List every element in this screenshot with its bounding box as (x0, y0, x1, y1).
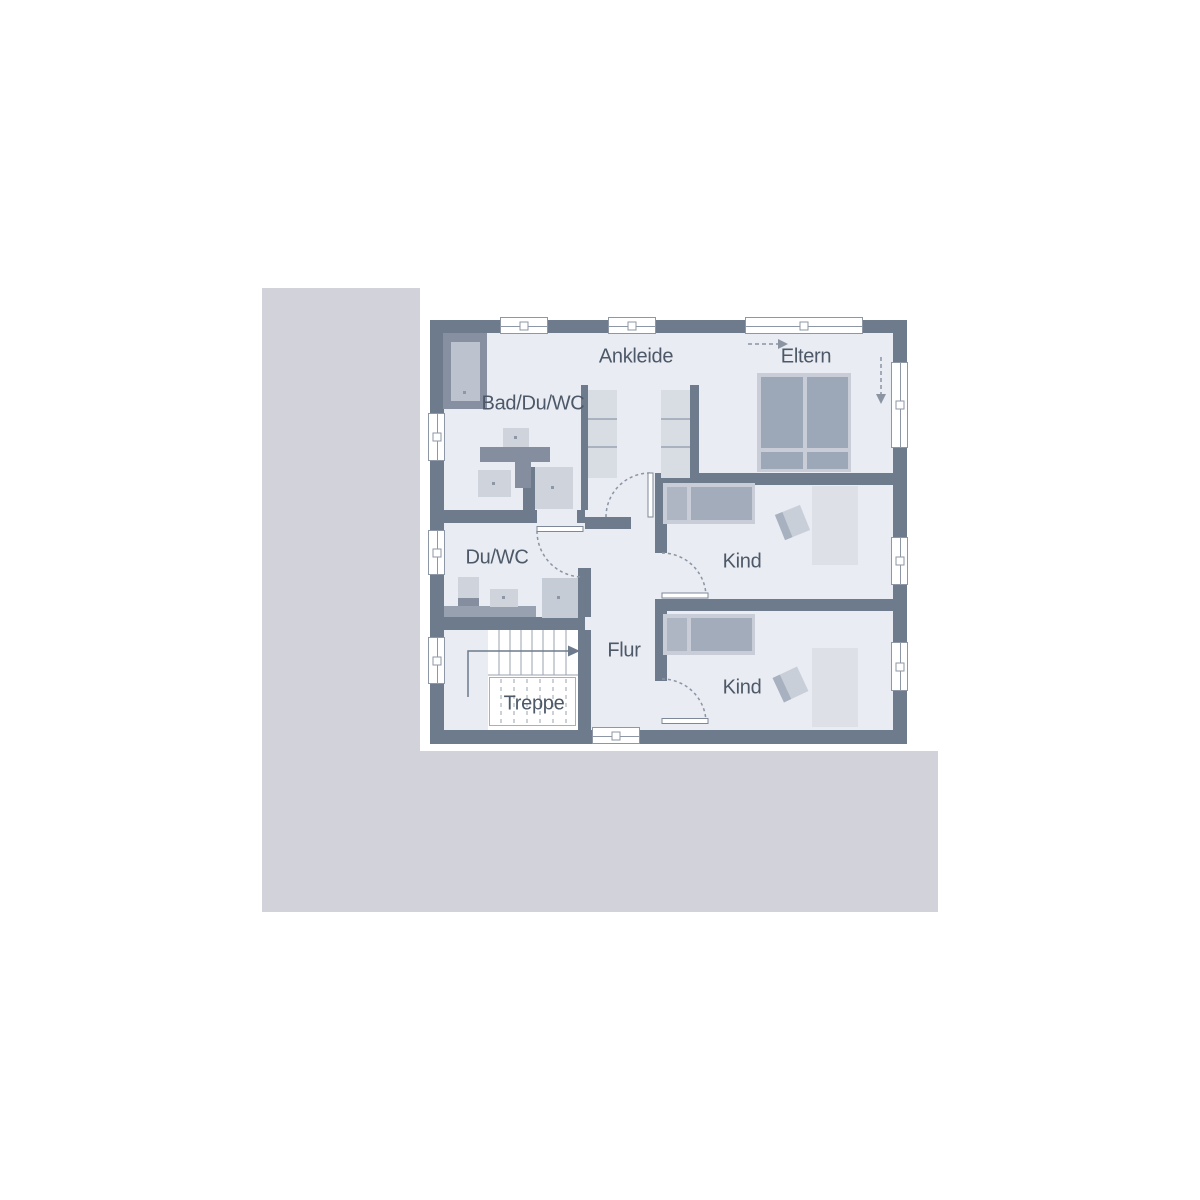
bad-washstand-counter (480, 447, 550, 462)
duwc-counter (444, 606, 536, 617)
mattress (691, 618, 752, 651)
window-knob (612, 731, 621, 740)
duwc-shower (542, 578, 578, 618)
wall-stairs-right (578, 630, 591, 730)
window-left-duwc (428, 530, 445, 575)
toilet-drain (492, 482, 495, 485)
kind2-desk (812, 648, 858, 727)
pillow (667, 618, 687, 651)
duwc-toilet (490, 589, 518, 607)
duwc-washbasin (458, 577, 479, 606)
wall-bad-duwc-west (444, 510, 537, 523)
window-knob (800, 321, 809, 330)
room-label-bad-du-wc: Bad/Du/WC (482, 393, 585, 416)
window-knob (895, 557, 904, 566)
bad-toilet (478, 470, 511, 497)
mattress (691, 487, 752, 520)
room-label-flur: Flur (607, 640, 640, 663)
wall-bad-duwc-jamb (577, 510, 585, 523)
pillow (667, 487, 687, 520)
window-top-1 (500, 317, 548, 334)
wardrobe-unit-a (588, 390, 617, 478)
room-label-treppe: Treppe (504, 693, 565, 716)
bathtub-drain (463, 391, 466, 394)
window-knob (432, 656, 441, 665)
wall-kind-divider (655, 599, 907, 611)
window-right-kind2 (891, 642, 908, 691)
room-label-eltern: Eltern (781, 346, 831, 369)
shelf-divider (661, 446, 690, 448)
wardrobe-unit-b (661, 390, 690, 478)
window-top-3 (745, 317, 863, 334)
window-knob (895, 401, 904, 410)
window-knob (628, 321, 637, 330)
site-area-bottom (420, 751, 938, 912)
shelf-divider (588, 446, 617, 448)
foot-cushion-left (761, 452, 803, 469)
window-knob (432, 548, 441, 557)
wall-outer-bottom (430, 730, 907, 744)
bad-washstand-stem (515, 462, 531, 488)
window-left-stairs (428, 637, 445, 684)
window-knob (895, 662, 904, 671)
kind2-bed (663, 614, 755, 655)
room-label-ankleide: Ankleide (599, 346, 673, 369)
room-label-du-wc: Du/WC (466, 547, 529, 570)
bad-sink (503, 428, 529, 447)
kind1-bed (663, 483, 755, 524)
shelf-divider (661, 418, 690, 420)
window-bottom-flur (592, 727, 640, 744)
wall-duwc-right (578, 568, 591, 617)
wall-duwc-stairs (444, 617, 585, 630)
shelf-divider (588, 418, 617, 420)
room-label-kind-2: Kind (723, 677, 762, 700)
foot-cushion-right (807, 452, 848, 469)
wall-wardrobe-partition-b (690, 385, 699, 478)
eltern-bed (757, 373, 851, 472)
sink-drain (514, 436, 517, 439)
mattress-left (761, 377, 803, 448)
site-area-left (262, 288, 420, 912)
wall-flur-north (585, 517, 631, 529)
window-right-kind1 (891, 537, 908, 585)
room-label-kind-1: Kind (723, 551, 762, 574)
window-top-2 (608, 317, 656, 334)
window-right-eltern (891, 362, 908, 448)
toilet-drain (502, 596, 505, 599)
window-knob (520, 321, 529, 330)
bad-shower (535, 467, 573, 509)
shower-drain (551, 486, 554, 489)
duwc-washbasin-base (458, 598, 479, 606)
floorplan-canvas: Ankleide Eltern Bad/Du/WC Du/WC Kind Kin… (0, 0, 1200, 1200)
bathtub (443, 333, 487, 409)
kind1-desk (812, 486, 858, 565)
mattress-right (807, 377, 848, 448)
shower-drain (557, 596, 560, 599)
window-knob (432, 433, 441, 442)
window-left-bad (428, 413, 445, 461)
